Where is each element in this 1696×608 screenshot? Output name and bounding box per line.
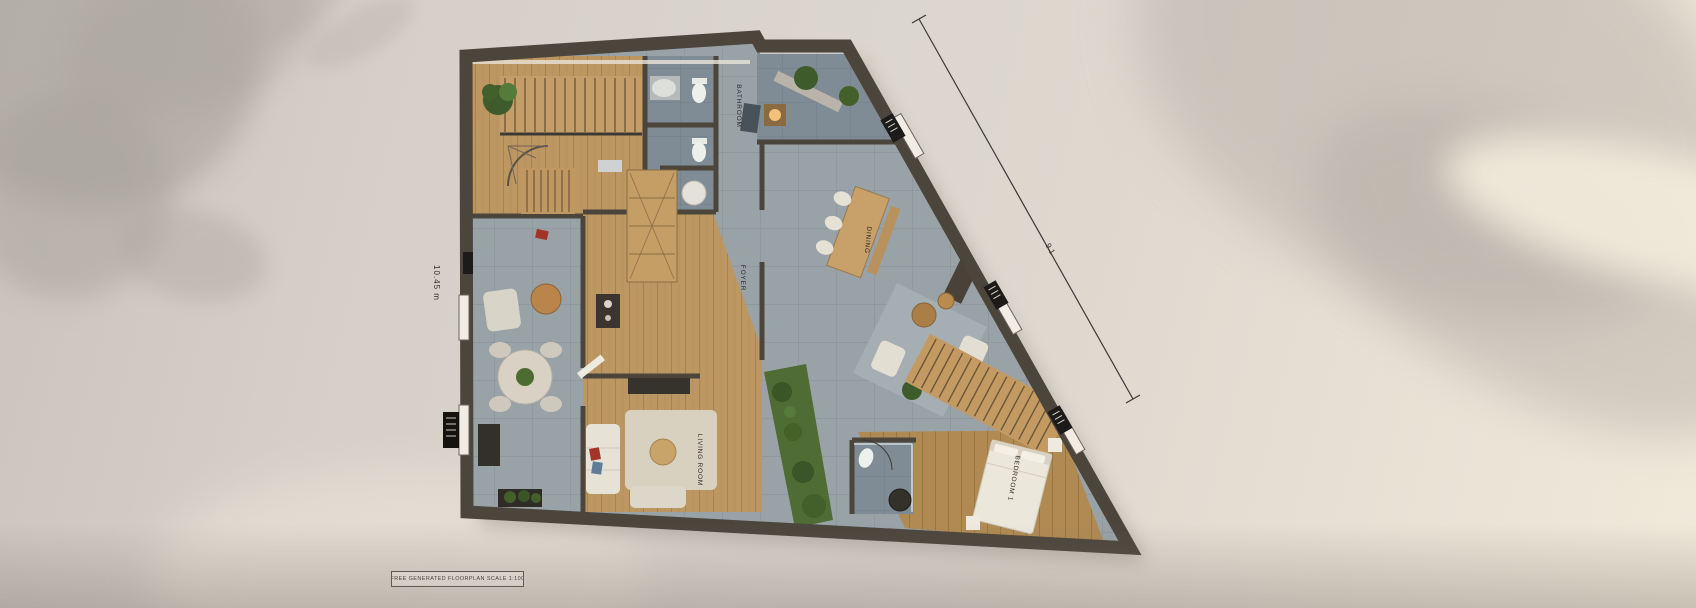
living-label: LIVING ROOM [696,434,703,486]
lamp-glow [769,109,781,121]
chair [540,396,562,412]
caption-text: FREE GENERATED FLOORPLAN SCALE 1:100 [391,576,524,582]
nightstand-2 [1048,438,1062,452]
tag-left-entry [443,412,459,448]
floor-plan: 9.1 10.45 m BATHROOM FOYER DINING LIVING… [0,0,1696,608]
coffee-table [531,284,561,314]
cabinet [478,424,500,466]
caption-box: FREE GENERATED FLOORPLAN SCALE 1:100 [391,571,524,587]
blue-pillow [591,461,603,474]
foyer-label: FOYER [739,265,746,291]
terrace-plant [794,66,818,90]
toilet [692,83,706,103]
tv-console [628,378,690,394]
pouf [650,439,676,465]
floors [466,37,1130,548]
round-mat [889,489,911,511]
armchair [482,288,521,332]
nightstand [966,516,980,530]
bathroom-label: BATHROOM [735,84,742,127]
chair [489,342,511,358]
scene-canvas: 9.1 10.45 m BATHROOM FOYER DINING LIVING… [0,0,1696,608]
window-left-2 [459,405,469,455]
table-plant [516,368,534,386]
chair [540,342,562,358]
left-dimension-text: 10.45 m [432,265,441,301]
bench [630,486,686,508]
dimension-value: 9.1 [1044,242,1058,257]
tag-left-1 [463,252,473,274]
red-pillow [589,447,601,461]
kitchen-sink [598,160,622,172]
terrace-plant-2 [839,86,859,106]
sink [652,79,676,97]
rattan-table-2 [938,293,954,309]
basin [682,181,706,205]
rattan-table [912,303,936,327]
chair [489,396,511,412]
wall-trim-top [470,60,750,64]
kitchen-counter [596,294,620,328]
toilet-2 [692,142,706,162]
window-left-1 [459,295,469,340]
